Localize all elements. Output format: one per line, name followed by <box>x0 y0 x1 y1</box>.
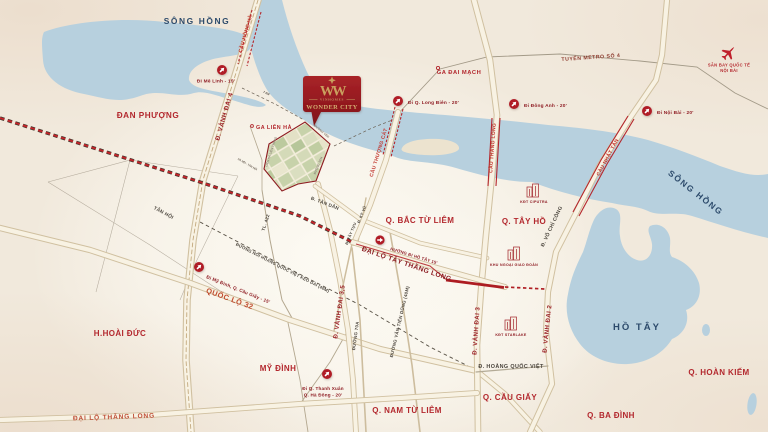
svg-text:SÔNG HỒNG: SÔNG HỒNG <box>164 15 231 26</box>
svg-text:MỸ ĐÌNH: MỸ ĐÌNH <box>260 364 297 373</box>
svg-text:SÂN BAY QUỐC TẾ: SÂN BAY QUỐC TẾ <box>708 63 750 68</box>
svg-text:H.HOÀI ĐỨC: H.HOÀI ĐỨC <box>94 329 146 338</box>
svg-text:KĐT CIPUTRA: KĐT CIPUTRA <box>520 200 548 204</box>
svg-text:VINHOMES: VINHOMES <box>320 98 344 102</box>
svg-text:Đi Mê Linh - 15': Đi Mê Linh - 15' <box>197 79 235 85</box>
svg-text:HỒ TÂY: HỒ TÂY <box>613 321 661 333</box>
svg-text:Q. HOÀN KIẾM: Q. HOÀN KIẾM <box>688 367 749 377</box>
svg-text:NỘI BÀI: NỘI BÀI <box>720 68 738 73</box>
svg-text:Q. TÂY HỒ: Q. TÂY HỒ <box>502 216 546 226</box>
svg-text:Q. NAM TỪ LIÊM: Q. NAM TỪ LIÊM <box>372 406 442 415</box>
svg-text:Đi Q. Thanh Xuân: Đi Q. Thanh Xuân <box>302 386 343 391</box>
svg-text:KHU NGOẠI GIAO ĐOÀN: KHU NGOẠI GIAO ĐOÀN <box>490 262 538 267</box>
svg-text:Đi Nội Bài - 20': Đi Nội Bài - 20' <box>657 110 694 116</box>
svg-text:Đi Đông Anh - 20': Đi Đông Anh - 20' <box>524 103 567 109</box>
svg-text:WONDER CITY: WONDER CITY <box>306 104 357 111</box>
svg-text:Đi Q. Long Biên - 20': Đi Q. Long Biên - 20' <box>408 100 459 106</box>
svg-text:Q. BA ĐÌNH: Q. BA ĐÌNH <box>587 411 635 420</box>
svg-text:Q. BẮC TỪ LIÊM: Q. BẮC TỪ LIÊM <box>386 216 455 225</box>
svg-text:Q. Hà Đông - 20': Q. Hà Đông - 20' <box>304 393 343 398</box>
svg-text:GA ĐAI MẠCH: GA ĐAI MẠCH <box>437 70 482 76</box>
svg-text:GA LIÊN HÀ: GA LIÊN HÀ <box>256 123 292 131</box>
svg-text:Đ. HOÀNG QUỐC VIỆT: Đ. HOÀNG QUỐC VIỆT <box>478 362 544 370</box>
svg-text:ĐAN PHƯỢNG: ĐAN PHƯỢNG <box>117 111 179 120</box>
svg-text:Q. CẦU GIẤY: Q. CẦU GIẤY <box>483 392 537 402</box>
svg-text:KĐT STARLAKE: KĐT STARLAKE <box>495 333 527 337</box>
